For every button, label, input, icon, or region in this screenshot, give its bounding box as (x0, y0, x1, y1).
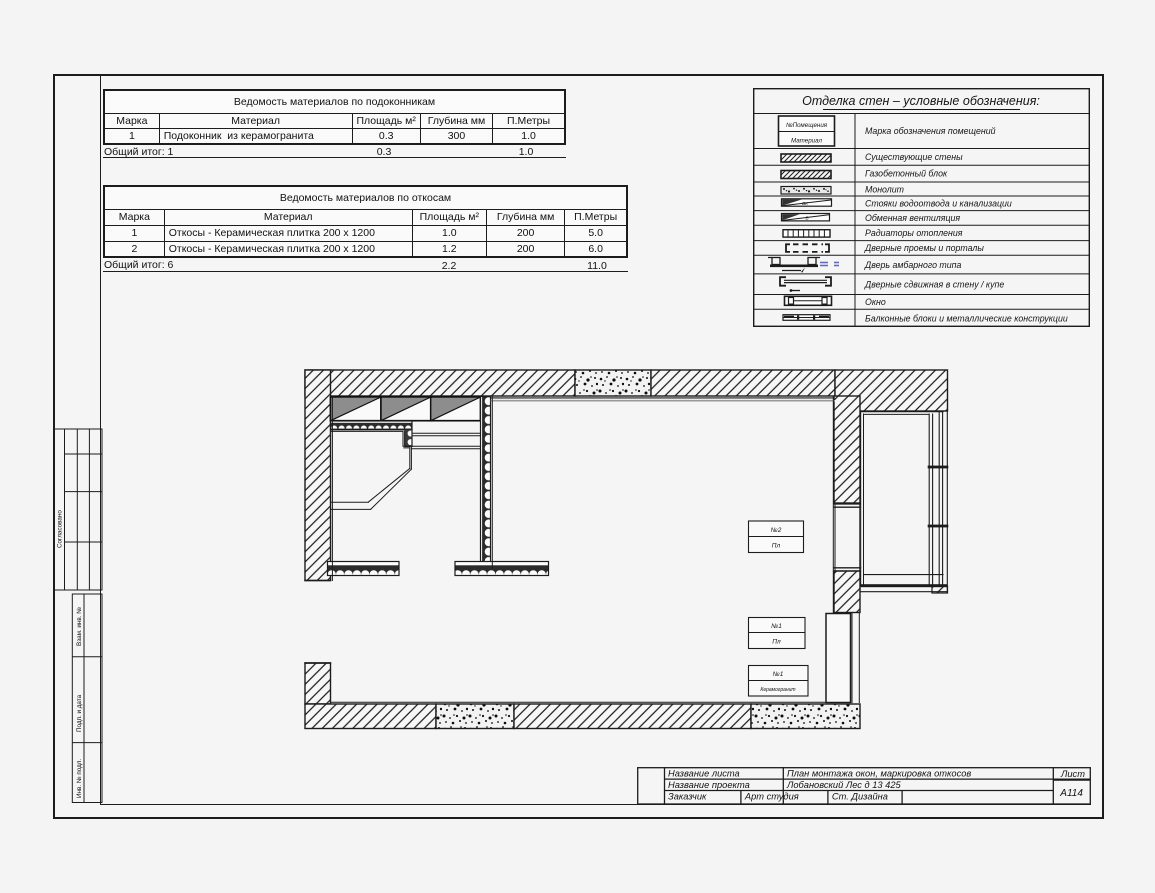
svg-text:Дверные проемы и порталы: Дверные проемы и порталы (864, 243, 984, 253)
svg-text:№2: №2 (771, 527, 782, 534)
svg-text:В: В (805, 216, 808, 221)
svg-text:Лист: Лист (1060, 769, 1085, 779)
svg-text:Керамогранит: Керамогранит (760, 687, 795, 693)
svg-text:Радиаторы отопления: Радиаторы отопления (865, 228, 963, 238)
svg-text:Стояки водоотвода и канализаци: Стояки водоотвода и канализации (865, 199, 1012, 209)
svg-text:Отделка стен – условные обозна: Отделка стен – условные обозначения: (802, 94, 1040, 108)
svg-text:Балконные блоки и металлически: Балконные блоки и металлические конструк… (865, 313, 1068, 323)
svg-text:Монолит: Монолит (865, 184, 904, 194)
svg-text:Существующие стены: Существующие стены (865, 152, 963, 162)
svg-text:Ст. Дизайна: Ст. Дизайна (832, 792, 888, 802)
svg-text:Обменная вентиляция: Обменная вентиляция (865, 213, 960, 223)
svg-text:Заказчик: Заказчик (668, 792, 707, 802)
svg-text:Дверные сдвижная в стену / куп: Дверные сдвижная в стену / купе (864, 279, 1004, 289)
svg-text:Окно: Окно (865, 297, 886, 307)
svg-text:Название листа: Название листа (668, 769, 740, 779)
svg-text:План монтажа окон, маркировка: План монтажа окон, маркировка откосов (787, 769, 971, 779)
svg-text:ВК: ВК (802, 201, 808, 206)
svg-text:№1: №1 (773, 671, 784, 678)
svg-text:Инв. № подл.: Инв. № подл. (76, 759, 83, 798)
svg-text:Название проекта: Название проекта (668, 780, 750, 790)
svg-text:Материал: Материал (791, 138, 823, 145)
svg-text:Лобановский Лес д 13 425: Лобановский Лес д 13 425 (786, 780, 901, 790)
svg-text:Согласовано: Согласовано (57, 510, 64, 548)
svg-text:Пл: Пл (772, 543, 781, 550)
svg-text:Газобетонный блок: Газобетонный блок (865, 169, 948, 179)
svg-text:Пл: Пл (772, 639, 781, 646)
svg-text:А114: А114 (1059, 788, 1083, 799)
svg-text:Подп. и дата: Подп. и дата (76, 694, 83, 732)
svg-text:№Помещения: №Помещения (786, 122, 828, 129)
svg-text:Марка обозначения помещений: Марка обозначения помещений (865, 126, 996, 136)
svg-text:Дверь амбарного типа: Дверь амбарного типа (864, 260, 961, 270)
svg-text:Арт студия: Арт студия (744, 792, 799, 802)
svg-text:№1: №1 (771, 623, 782, 630)
svg-text:Взам. инв. №: Взам. инв. № (76, 607, 83, 646)
